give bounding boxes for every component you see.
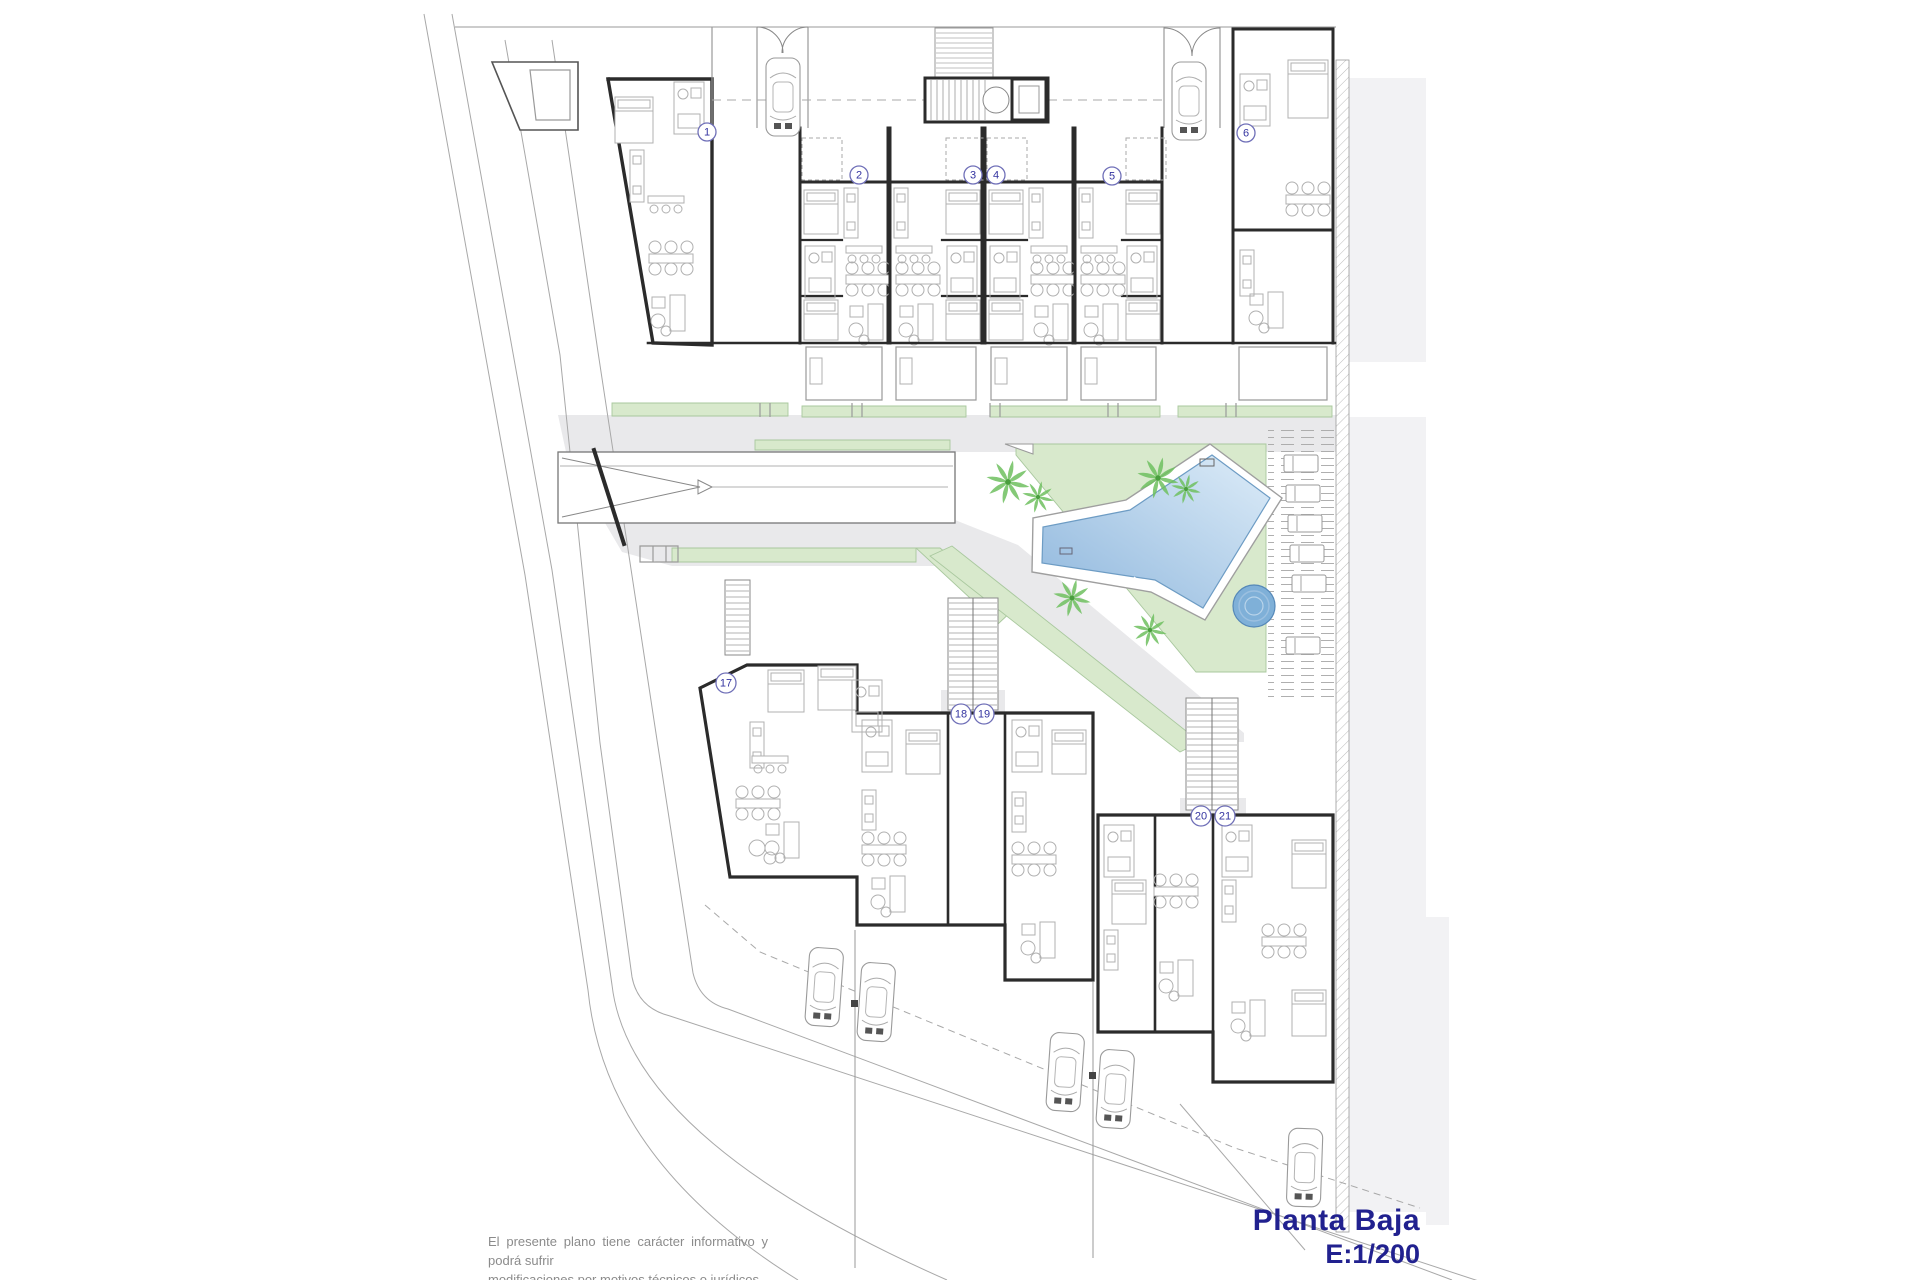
disclaimer-line-1: El presente plano tiene carácter informa… bbox=[488, 1234, 768, 1268]
unit-number: 18 bbox=[955, 709, 967, 721]
staircase bbox=[948, 598, 998, 710]
unit-number: 20 bbox=[1195, 811, 1207, 823]
sun-lounger bbox=[1286, 485, 1320, 502]
car-icon bbox=[766, 58, 800, 136]
unit-badge: 3 bbox=[964, 166, 982, 184]
furniture bbox=[989, 188, 1075, 345]
furniture bbox=[1240, 60, 1330, 333]
lower-block-east bbox=[1098, 815, 1333, 1082]
unit-number: 3 bbox=[970, 170, 976, 182]
unit-badge: 19 bbox=[974, 704, 994, 724]
staircase bbox=[1186, 698, 1238, 810]
unit-badge: 2 bbox=[850, 166, 868, 184]
sun-lounger bbox=[1290, 545, 1324, 562]
scale-label: E:1/200 bbox=[1253, 1239, 1420, 1270]
plan-title-block: Planta Baja E:1/200 bbox=[1253, 1204, 1420, 1270]
unit-number: 4 bbox=[993, 170, 999, 182]
boundary-wall-hatch bbox=[1336, 60, 1349, 1232]
unit-number: 6 bbox=[1243, 128, 1249, 140]
unit-badge: 4 bbox=[987, 166, 1005, 184]
unit-number: 5 bbox=[1109, 171, 1115, 183]
car-icon bbox=[1096, 1049, 1135, 1129]
furniture bbox=[615, 82, 704, 336]
sun-lounger bbox=[1286, 637, 1320, 654]
furniture bbox=[736, 666, 1086, 963]
sun-lounger bbox=[1288, 515, 1322, 532]
unit-badge: 20 bbox=[1191, 806, 1211, 826]
sun-lounger bbox=[1292, 575, 1326, 592]
sun-lounger bbox=[1284, 455, 1318, 472]
page-title: Planta Baja bbox=[1253, 1204, 1420, 1239]
top-building bbox=[492, 27, 1335, 417]
unit-badge: 21 bbox=[1215, 806, 1235, 826]
floorplan-page: 1234561718192021 Planta Baja E:1/200 El … bbox=[0, 0, 1920, 1280]
car-icon bbox=[857, 962, 896, 1042]
car-icon bbox=[1046, 1032, 1085, 1112]
lounger-deck bbox=[1268, 430, 1336, 702]
unit-badge: 17 bbox=[716, 673, 736, 693]
furniture bbox=[894, 188, 980, 345]
unit-number: 17 bbox=[720, 678, 732, 690]
jacuzzi bbox=[1233, 585, 1275, 627]
unit-number: 2 bbox=[856, 170, 862, 182]
elevator bbox=[1012, 79, 1046, 120]
furniture bbox=[804, 188, 890, 345]
disclaimer-line-2: modificaciones por motivos técnicos o ju… bbox=[488, 1272, 763, 1280]
unit-badge: 18 bbox=[951, 704, 971, 724]
unit-badge: 1 bbox=[698, 123, 716, 141]
townhouse-unit bbox=[1233, 29, 1333, 400]
unit-number: 1 bbox=[704, 127, 710, 139]
townhouse-unit bbox=[800, 128, 890, 400]
townhouse-unit bbox=[1075, 128, 1166, 400]
car-icon bbox=[1286, 1128, 1323, 1207]
unit-number: 21 bbox=[1219, 811, 1231, 823]
unit-badge: 6 bbox=[1237, 124, 1255, 142]
car-icon bbox=[1172, 62, 1206, 140]
furniture bbox=[1079, 188, 1160, 345]
stair-core bbox=[925, 28, 1048, 122]
disclaimer-note: El presente plano tiene carácter informa… bbox=[488, 1233, 768, 1280]
car-icon bbox=[805, 947, 844, 1027]
staircase bbox=[725, 580, 750, 655]
palm-tree-icon bbox=[986, 460, 1030, 504]
lower-block-west bbox=[700, 665, 1093, 980]
unit-number: 19 bbox=[978, 709, 990, 721]
floor-plan-drawing: 1234561718192021 bbox=[0, 0, 1920, 1280]
unit-badge: 5 bbox=[1103, 167, 1121, 185]
furniture bbox=[1104, 825, 1326, 1041]
